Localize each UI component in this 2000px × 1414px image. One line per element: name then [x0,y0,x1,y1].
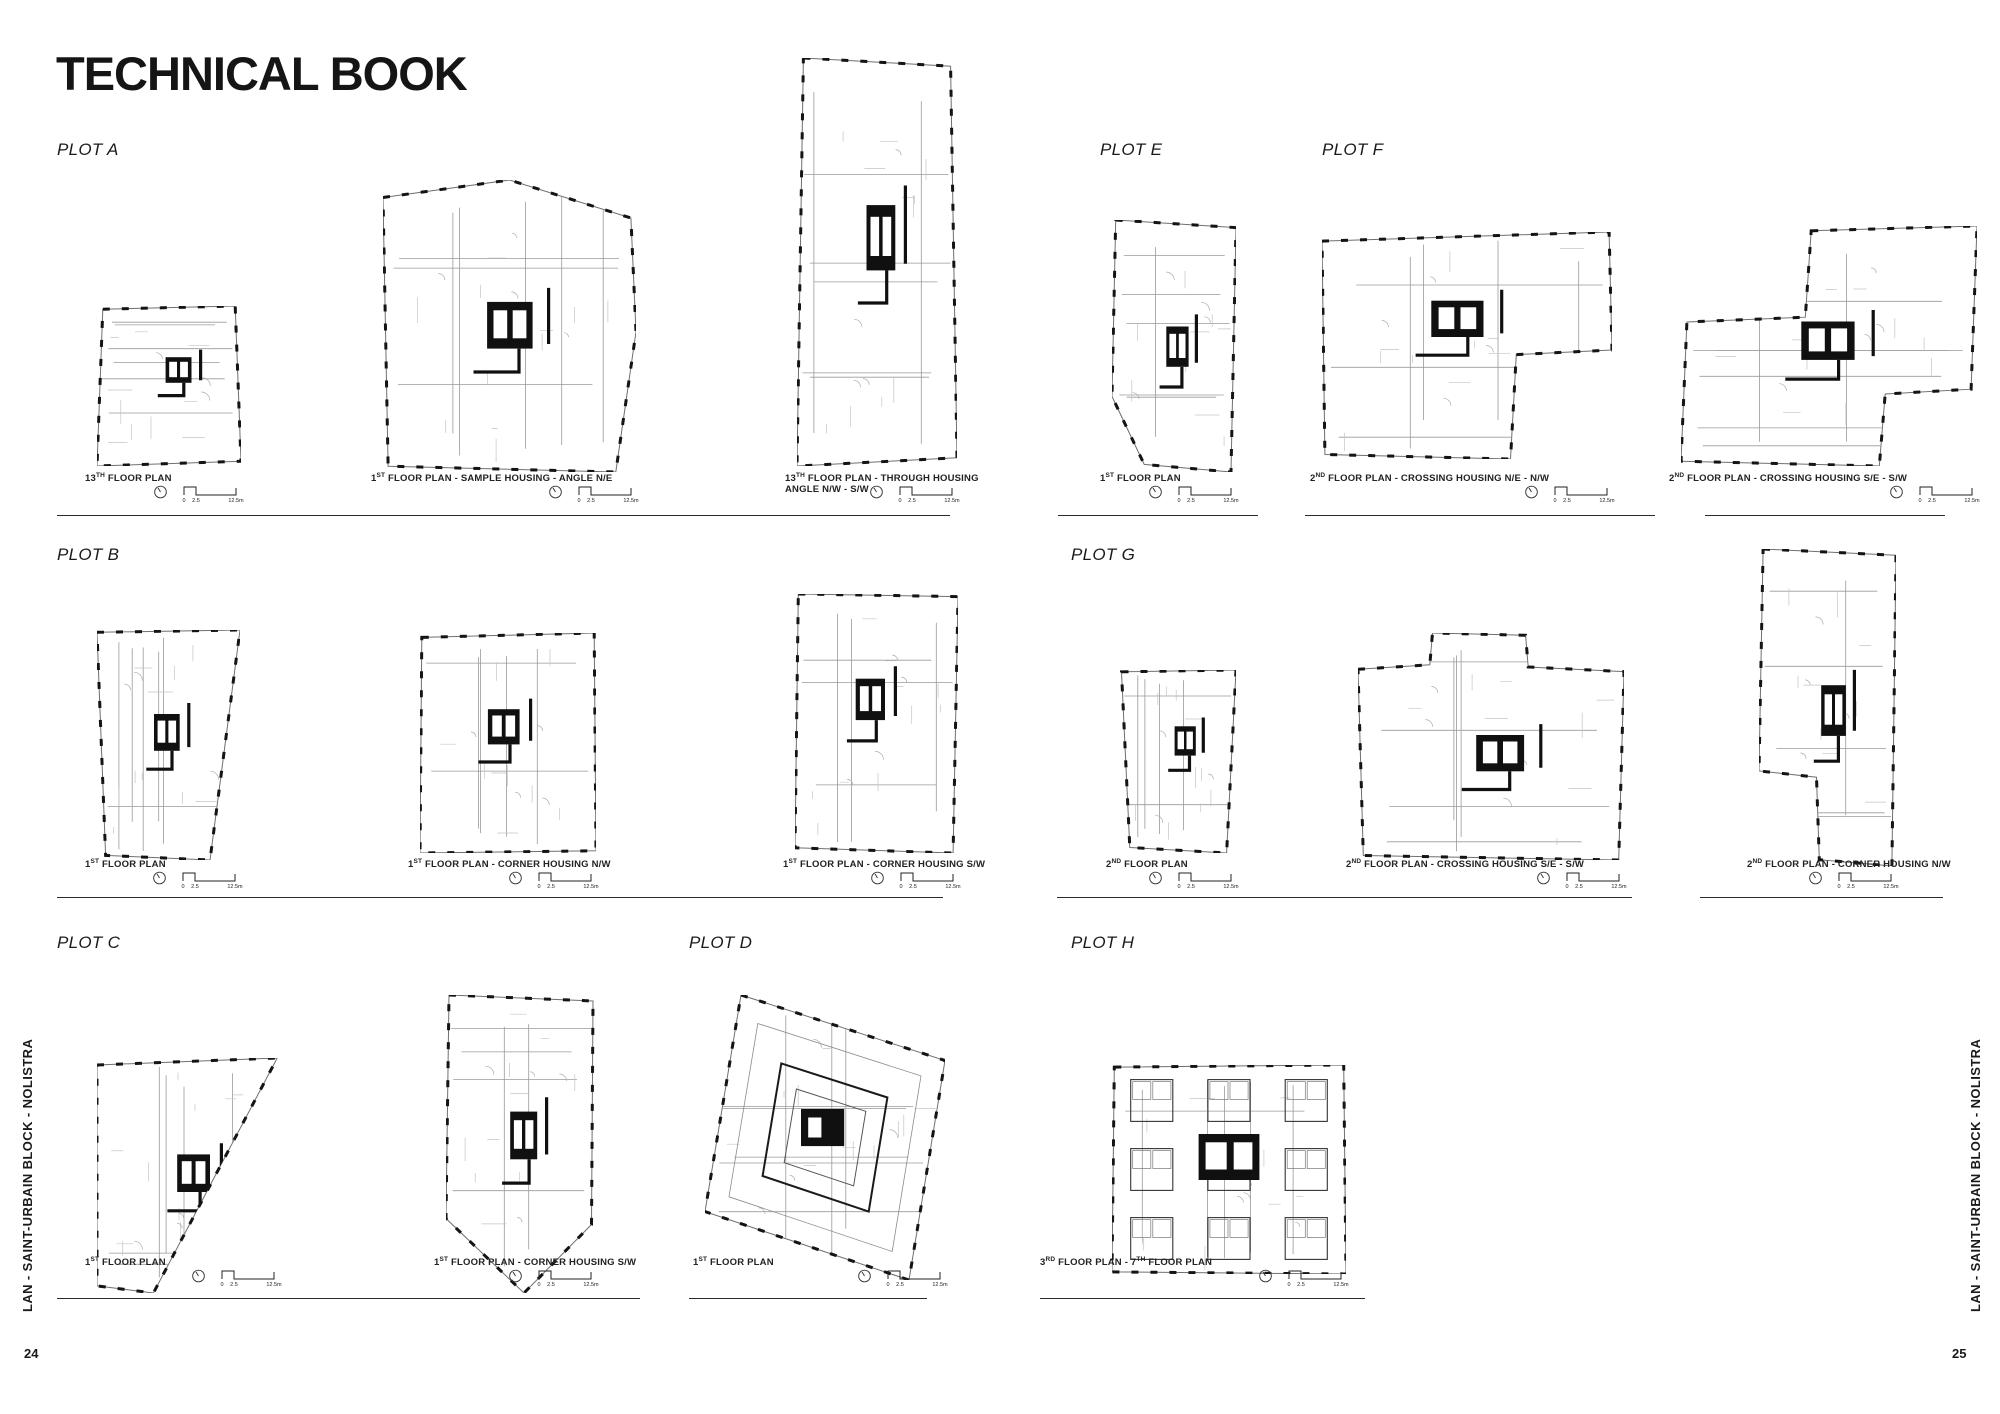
figure-meta-b2: 02.512.5m [508,870,599,894]
floor-plan-drawing-f2 [1681,226,1977,466]
figure-caption-a1: 13TH FLOOR PLAN [85,470,172,484]
north-arrow-icon [548,484,563,500]
scale-tick-mid: 2.5 [1575,884,1583,890]
scale-bar: 02.512.5m [895,870,961,890]
scale-tick-end: 12.5m [583,884,599,890]
figure-caption-f2: 2ND FLOOR PLAN - CROSSING HOUSING S/E - … [1669,470,1907,484]
scale-bar: 02.512.5m [1561,870,1627,890]
scale-bar: 02.512.5m [533,870,599,890]
scale-tick-0: 0 [1565,884,1568,890]
plot-label-a: PLOT A [57,140,119,160]
floor-plan-f2 [1681,226,1977,466]
scale-tick-mid: 2.5 [1187,884,1195,890]
figure-caption-g2: 2ND FLOOR PLAN - CROSSING HOUSING S/E - … [1346,856,1584,870]
separator-line [1705,515,1945,516]
scale-tick-end: 12.5m [1883,884,1899,890]
figure-caption-d1: 1ST FLOOR PLAN [693,1254,774,1268]
figure-meta-g1: 02.512.5m [1148,870,1239,894]
north-arrow-icon [508,870,523,886]
scale-tick-0: 0 [1837,884,1840,890]
floor-plan-e1 [1112,220,1236,472]
floor-plan-b3 [795,594,958,853]
figure-caption-e1: 1ST FLOOR PLAN [1100,470,1181,484]
plot-label-b: PLOT B [57,545,119,565]
scale-tick-mid: 2.5 [191,884,199,890]
scale-tick-end: 12.5m [583,1282,599,1288]
figure-meta-c2: 02.512.5m [508,1268,599,1292]
floor-plan-drawing-c2 [446,995,596,1293]
separator-line [57,897,943,898]
scale-tick-end: 12.5m [945,884,961,890]
floor-plan-a3 [797,58,957,466]
north-arrow-icon [1148,484,1163,500]
scale-bar: 02.512.5m [533,1268,599,1288]
scale-tick-0: 0 [1287,1282,1290,1288]
scale-bar: 02.512.5m [1173,870,1239,890]
scale-tick-end: 12.5m [944,498,960,504]
separator-line [1058,515,1258,516]
scale-bar: 02.512.5m [178,484,244,504]
floor-plan-drawing-b1 [97,630,240,860]
scale-tick-mid: 2.5 [192,498,200,504]
scale-tick-end: 12.5m [932,1282,948,1288]
north-arrow-icon [1148,870,1163,886]
figure-meta-a3: 02.512.5m [869,484,960,508]
scale-tick-end: 12.5m [623,498,639,504]
plot-label-g: PLOT G [1071,545,1135,565]
scale-bar: 02.512.5m [1549,484,1615,504]
floor-plan-drawing-b2 [420,633,596,853]
side-text-left: LAN - SAINT-URBAIN BLOCK - NOLISTRA [20,1039,35,1312]
scale-tick-mid: 2.5 [908,498,916,504]
scale-tick-0: 0 [1918,498,1921,504]
floor-plan-drawing-a2 [383,180,636,472]
north-arrow-icon [153,484,168,500]
scale-tick-end: 12.5m [1599,498,1615,504]
figure-meta-h1: 02.512.5m [1258,1268,1349,1292]
scale-tick-mid: 2.5 [547,884,555,890]
scale-bar: 02.512.5m [573,484,639,504]
scale-tick-0: 0 [181,884,184,890]
separator-line [57,515,950,516]
scale-tick-mid: 2.5 [909,884,917,890]
scale-tick-mid: 2.5 [587,498,595,504]
separator-line [689,1298,927,1299]
figure-meta-c1: 02.512.5m [191,1268,282,1292]
figure-caption-c1: 1ST FLOOR PLAN [85,1254,166,1268]
floor-plan-c2 [446,995,596,1293]
figure-meta-g2: 02.512.5m [1536,870,1627,894]
scale-tick-mid: 2.5 [1187,498,1195,504]
floor-plan-drawing-f1 [1322,232,1612,459]
north-arrow-icon [1524,484,1539,500]
scale-tick-0: 0 [886,1282,889,1288]
north-arrow-icon [870,870,885,886]
floor-plan-b1 [97,630,240,860]
figure-meta-f2: 02.512.5m [1889,484,1980,508]
floor-plan-g3 [1759,549,1896,866]
scale-tick-0: 0 [220,1282,223,1288]
floor-plan-g2 [1358,633,1624,860]
floor-plan-drawing-g3 [1759,549,1896,866]
scale-tick-0: 0 [537,1282,540,1288]
floor-plan-drawing-g1 [1118,670,1236,853]
figure-caption-h1: 3RD FLOOR PLAN - 7TH FLOOR PLAN [1040,1254,1212,1268]
floor-plan-drawing-a1 [97,306,241,466]
figure-meta-b3: 02.512.5m [870,870,961,894]
north-arrow-icon [1536,870,1551,886]
scale-tick-0: 0 [182,498,185,504]
scale-tick-mid: 2.5 [1297,1282,1305,1288]
plot-label-h: PLOT H [1071,933,1134,953]
separator-line [1057,897,1632,898]
floor-plan-d1 [705,995,945,1280]
scale-tick-end: 12.5m [266,1282,282,1288]
separator-line [1305,515,1655,516]
figure-caption-b3: 1ST FLOOR PLAN - CORNER HOUSING S/W [783,856,985,870]
north-arrow-icon [1258,1268,1273,1284]
scale-tick-0: 0 [537,884,540,890]
north-arrow-icon [857,1268,872,1284]
scale-tick-0: 0 [577,498,580,504]
figure-caption-f1: 2ND FLOOR PLAN - CROSSING HOUSING N/E - … [1310,470,1549,484]
scale-bar: 02.512.5m [1283,1268,1349,1288]
north-arrow-icon [191,1268,206,1284]
plot-label-d: PLOT D [689,933,752,953]
plot-label-f: PLOT F [1322,140,1383,160]
floor-plan-a2 [383,180,636,472]
separator-line [1040,1298,1365,1299]
scale-tick-end: 12.5m [1223,884,1239,890]
figure-caption-b2: 1ST FLOOR PLAN - CORNER HOUSING N/W [408,856,611,870]
separator-line [57,1298,640,1299]
floor-plan-f1 [1322,232,1612,459]
side-text-right: LAN - SAINT-URBAIN BLOCK - NOLISTRA [1968,1039,1983,1312]
floor-plan-drawing-d1 [705,995,945,1280]
separator-line [1700,897,1943,898]
scale-tick-end: 12.5m [1333,1282,1349,1288]
figure-meta-b1: 02.512.5m [152,870,243,894]
scale-bar: 02.512.5m [1173,484,1239,504]
scale-tick-mid: 2.5 [1563,498,1571,504]
north-arrow-icon [869,484,884,500]
plot-label-e: PLOT E [1100,140,1162,160]
scale-tick-end: 12.5m [227,884,243,890]
figure-meta-e1: 02.512.5m [1148,484,1239,508]
figure-caption-g1: 2ND FLOOR PLAN [1106,856,1188,870]
figure-meta-a2: 02.512.5m [548,484,639,508]
scale-bar: 02.512.5m [894,484,960,504]
book-spread: TECHNICAL BOOK LAN - SAINT-URBAIN BLOCK … [0,0,2000,1414]
page-title: TECHNICAL BOOK [56,46,467,101]
floor-plan-g1 [1118,670,1236,853]
floor-plan-h1 [1112,1065,1346,1274]
scale-tick-end: 12.5m [1223,498,1239,504]
scale-bar: 02.512.5m [882,1268,948,1288]
north-arrow-icon [508,1268,523,1284]
figure-caption-c2: 1ST FLOOR PLAN - CORNER HOUSING S/W [434,1254,636,1268]
floor-plan-drawing-b3 [795,594,958,853]
scale-tick-0: 0 [1177,498,1180,504]
figure-caption-g3: 2ND FLOOR PLAN - CORNER HOUSING N/W [1747,856,1951,870]
figure-meta-g3: 02.512.5m [1808,870,1899,894]
page-number-left: 24 [24,1346,38,1361]
scale-tick-mid: 2.5 [230,1282,238,1288]
scale-tick-0: 0 [899,884,902,890]
figure-meta-a1: 02.512.5m [153,484,244,508]
scale-tick-0: 0 [1177,884,1180,890]
figure-caption-b1: 1ST FLOOR PLAN [85,856,166,870]
floor-plan-drawing-h1 [1112,1065,1346,1274]
north-arrow-icon [1808,870,1823,886]
north-arrow-icon [1889,484,1904,500]
figure-meta-f1: 02.512.5m [1524,484,1615,508]
scale-tick-0: 0 [898,498,901,504]
floor-plan-a1 [97,306,241,466]
scale-tick-end: 12.5m [228,498,244,504]
scale-bar: 02.512.5m [1833,870,1899,890]
figure-caption-a2: 1ST FLOOR PLAN - SAMPLE HOUSING - ANGLE … [371,470,612,484]
scale-tick-mid: 2.5 [1928,498,1936,504]
scale-tick-mid: 2.5 [1847,884,1855,890]
scale-tick-mid: 2.5 [896,1282,904,1288]
scale-bar: 02.512.5m [216,1268,282,1288]
scale-tick-end: 12.5m [1964,498,1980,504]
scale-bar: 02.512.5m [1914,484,1980,504]
scale-tick-end: 12.5m [1611,884,1627,890]
scale-tick-mid: 2.5 [547,1282,555,1288]
scale-tick-0: 0 [1553,498,1556,504]
page-number-right: 25 [1952,1346,1966,1361]
figure-meta-d1: 02.512.5m [857,1268,948,1292]
floor-plan-drawing-g2 [1358,633,1624,860]
plot-label-c: PLOT C [57,933,120,953]
floor-plan-drawing-a3 [797,58,957,466]
floor-plan-drawing-e1 [1112,220,1236,472]
scale-bar: 02.512.5m [177,870,243,890]
north-arrow-icon [152,870,167,886]
floor-plan-b2 [420,633,596,853]
